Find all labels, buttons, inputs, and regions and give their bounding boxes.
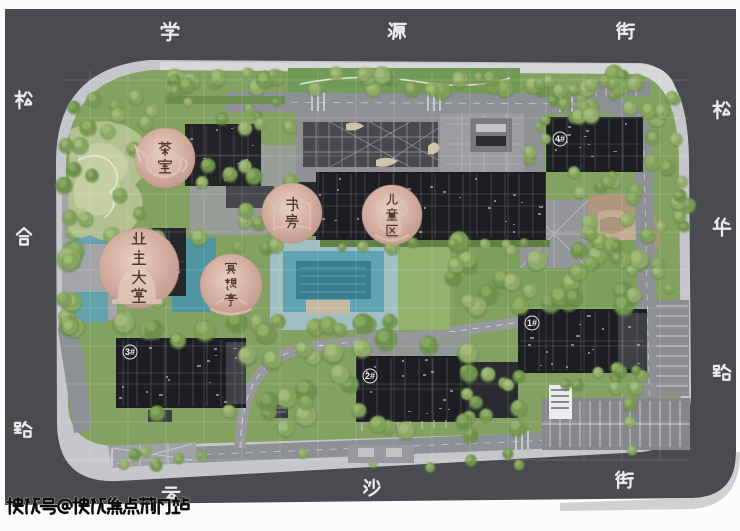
svg-text:2#: 2# [365,371,375,381]
svg-text:3#: 3# [125,347,135,357]
svg-text:4#: 4# [555,134,565,144]
svg-text:1#: 1# [527,318,537,328]
